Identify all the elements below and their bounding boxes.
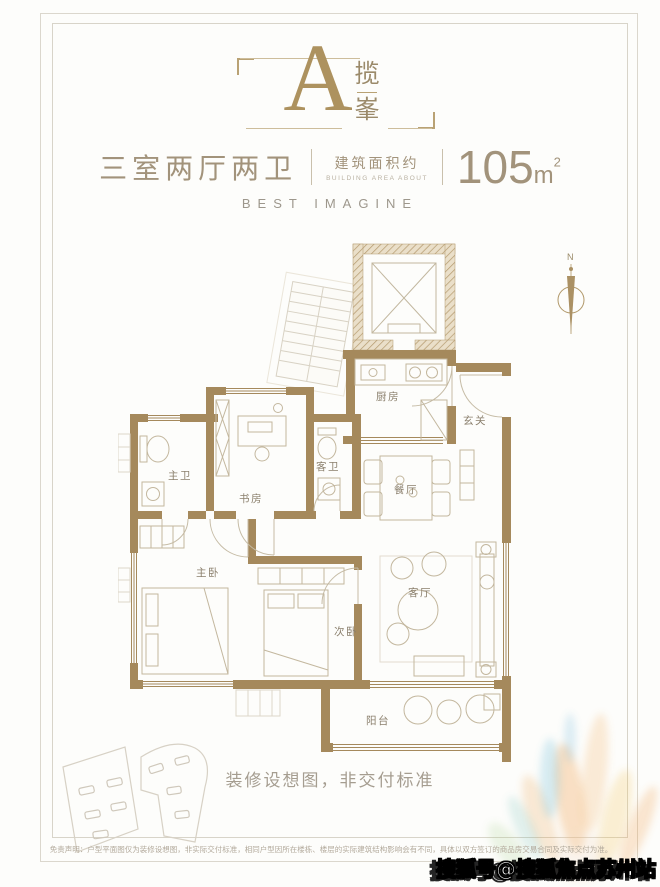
area-exponent: 2 bbox=[554, 155, 561, 170]
room-label-balcony: 阳台 bbox=[366, 714, 390, 727]
watermark-text: 搜狐号@搜狐焦点苏州站 bbox=[436, 857, 656, 881]
room-label-master-bath: 主卫 bbox=[168, 470, 192, 482]
compass-north-label: N bbox=[567, 252, 574, 262]
logo-rule-bottom-right bbox=[388, 128, 432, 129]
elevator-cab-icon bbox=[372, 263, 436, 333]
room-label-kitchen: 厨房 bbox=[376, 390, 400, 403]
area-label-cn: 建筑面积约 bbox=[335, 153, 420, 173]
compass-icon: N bbox=[558, 252, 584, 334]
watermark: 搜狐号@搜狐焦点苏州站 搜狐号@搜狐焦点苏州站 bbox=[436, 853, 656, 885]
plan-name: 揽 峯 bbox=[352, 60, 382, 125]
room-label-guest-bath: 客卫 bbox=[316, 460, 340, 473]
bracket-top-left-icon bbox=[237, 58, 254, 75]
layout-title: 三室两厅两卫 bbox=[99, 147, 297, 187]
siteplan-sketch bbox=[45, 735, 215, 855]
room-label-second-bedroom: 次卧 bbox=[334, 625, 358, 638]
room-label-foyer: 玄关 bbox=[463, 414, 487, 427]
plan-logo: A 揽 峯 bbox=[0, 44, 660, 140]
area-label-en: BUILDING AREA ABOUT bbox=[326, 175, 428, 182]
plan-name-divider bbox=[357, 92, 377, 93]
render-note: 装修设想图，非交付标准 bbox=[0, 766, 660, 791]
bracket-bottom-right-icon bbox=[418, 112, 435, 129]
floorplan-poster: { "header": { "plan_letter": "A", "plan_… bbox=[0, 0, 660, 887]
elevator-shaft bbox=[353, 244, 455, 350]
area-value: 105m2 bbox=[457, 144, 561, 190]
area-number: 105 bbox=[457, 141, 534, 193]
spec-divider-1 bbox=[311, 149, 312, 185]
plan-name-top: 揽 bbox=[354, 60, 379, 88]
room-label-master-bedroom: 主卧 bbox=[196, 566, 220, 579]
room-label-study: 书房 bbox=[239, 492, 263, 505]
area-unit: m bbox=[534, 162, 554, 189]
plan-letter: A bbox=[278, 30, 358, 126]
tagline: BEST IMAGINE bbox=[0, 196, 660, 211]
area-label-block: 建筑面积约 BUILDING AREA ABOUT bbox=[326, 153, 428, 182]
room-label-living: 客厅 bbox=[408, 586, 432, 599]
spec-row: 三室两厅两卫 建筑面积约 BUILDING AREA ABOUT 105m2 bbox=[0, 142, 660, 192]
plan-name-bottom: 峯 bbox=[354, 96, 379, 124]
room-label-dining: 餐厅 bbox=[394, 483, 418, 496]
spec-divider-2 bbox=[442, 149, 443, 185]
